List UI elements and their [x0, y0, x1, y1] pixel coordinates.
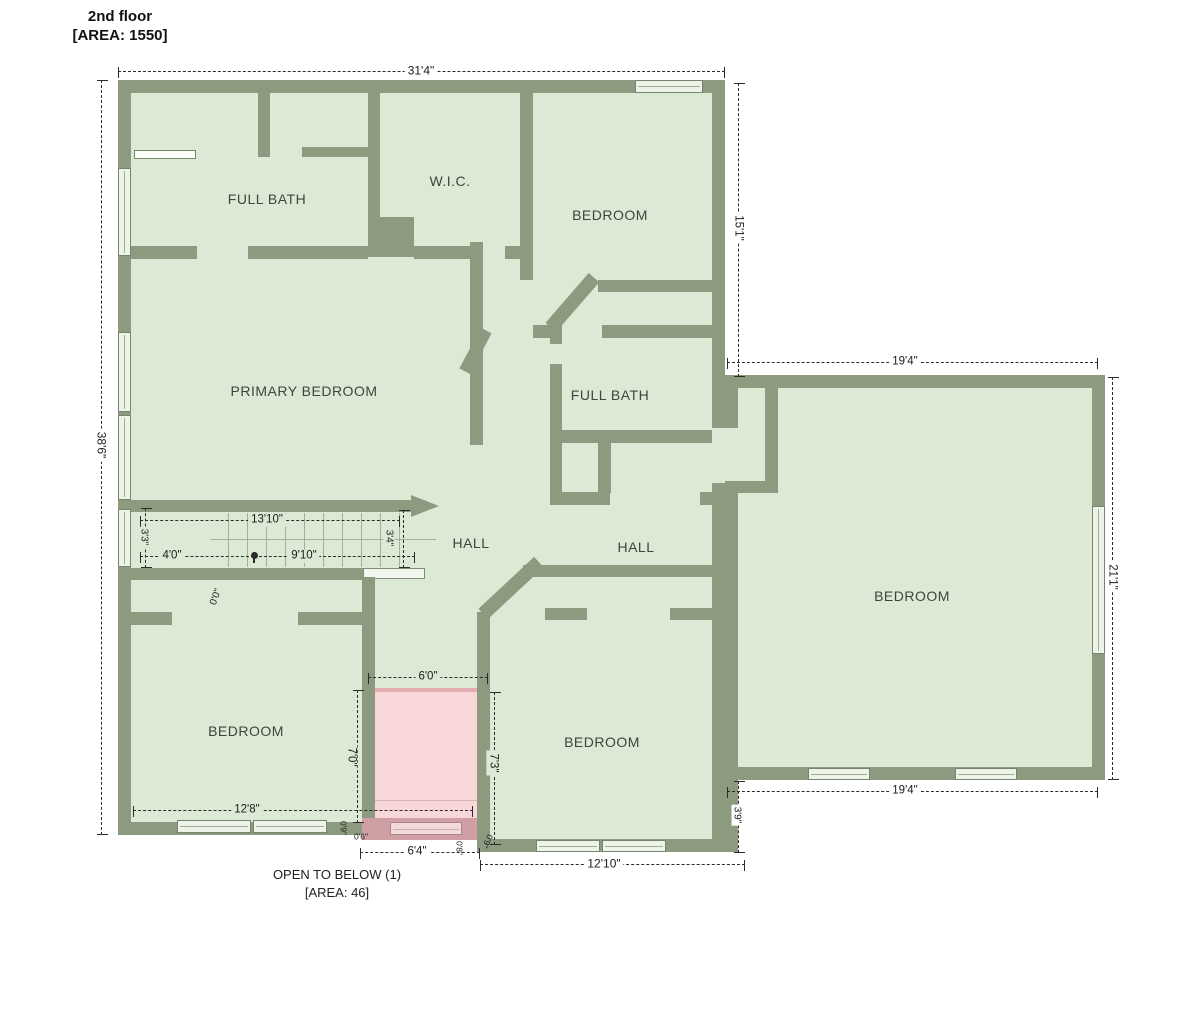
open-to-below-note-line1: OPEN TO BELOW (1): [247, 866, 427, 884]
bedroom-left-top-wall-b: [298, 612, 365, 625]
open-to-below-window: [390, 822, 462, 835]
window-bath1-left: [118, 168, 131, 256]
dim-overall-width-label: 31'4": [405, 64, 438, 77]
dim-right-height-label: 21'1": [1106, 561, 1119, 592]
room-label-full-bath-mid: FULL BATH: [571, 387, 649, 403]
dim-bedroom-left-width-label: 12'8": [231, 804, 262, 817]
window-bedroom-top: [635, 80, 703, 93]
bath1-counter: [134, 150, 196, 159]
bath1-stub-wall: [258, 93, 270, 157]
window-primary-left-upper: [118, 332, 131, 412]
dim-stairs-end-line: [403, 510, 404, 568]
floor-title-name: 2nd floor: [55, 8, 185, 27]
under-stairs-wall: [131, 568, 363, 580]
room-label-bedroom-top: BEDROOM: [572, 207, 648, 223]
bath1-partition-wall: [302, 147, 368, 157]
open-to-below-inner-line: [375, 800, 477, 801]
window-bedroom-mid-bottom-a: [536, 840, 600, 852]
room-label-bedroom-left: BEDROOM: [208, 723, 284, 739]
room-label-hall-left: HALL: [452, 535, 489, 551]
window-stairs-left: [118, 509, 131, 567]
dim-open-seg-c-label: 0'8": [454, 840, 463, 856]
dim-stairs-run-b-line: [254, 556, 415, 557]
dim-right-offset-label: 3'9": [732, 805, 743, 826]
dim-open-seg-b-label: 0'6": [353, 832, 369, 841]
bath1-bottom-wall-a: [131, 246, 197, 259]
dim-stairs-end-label: 3'4": [384, 528, 395, 549]
window-bedroom-mid-bottom-b: [602, 840, 666, 852]
bedroom-mid-closet-stub-a: [545, 608, 587, 620]
window-bedroom-right-bottom-a: [808, 768, 870, 780]
window-primary-left-lower: [118, 415, 131, 500]
bedroom-left-top-wall-a: [131, 612, 172, 625]
right-bedroom-closet-right-wall: [765, 383, 778, 493]
open-to-below-note-line2: [AREA: 46]: [247, 884, 427, 902]
dim-stairs-run-a-label: 4'0": [159, 550, 184, 563]
dim-open-width-top-label: 6'0": [415, 671, 440, 684]
floor-title: 2nd floor [AREA: 1550]: [55, 8, 185, 46]
right-bedroom-floor: [738, 388, 1092, 767]
dim-bedroom-top-height-label: 15'1": [732, 212, 745, 243]
bath2-left-wall-a: [550, 330, 562, 344]
bedroom-top-closet-bottom-wall-b: [602, 325, 712, 338]
room-label-bedroom-right: BEDROOM: [874, 588, 950, 604]
dim-open-width-bottom-label: 6'4": [404, 846, 429, 859]
room-label-bedroom-mid: BEDROOM: [564, 734, 640, 750]
dim-right-width-bottom-label: 19'4": [889, 785, 920, 798]
wic-left-wall: [368, 93, 380, 217]
room-label-wic: W.I.C.: [429, 173, 470, 189]
bedroom-mid-closet-stub-b: [670, 608, 712, 620]
dim-open-height-right-label: 7'3": [487, 750, 500, 775]
dim-open-height-left-label: 7'0": [345, 744, 358, 769]
window-bedroom-left-bottom-a: [177, 820, 251, 833]
dim-stairs-width-label: 3'3": [139, 527, 150, 548]
floor-plan-canvas: 31'4" 38'6" 15'1" 19'4" 21'1" 19'4" 3'9"…: [0, 0, 1200, 1010]
floor-title-area: [AREA: 1550]: [55, 27, 185, 46]
window-bedroom-right-bottom-b: [955, 768, 1017, 780]
window-bedroom-left-bottom-b: [253, 820, 327, 833]
dim-bedroom-left-width-line: [133, 810, 473, 811]
dim-stairs-run-a-line: [140, 556, 254, 557]
room-label-full-bath-upper: FULL BATH: [228, 191, 306, 207]
room-label-primary-bedroom: PRIMARY BEDROOM: [230, 383, 377, 399]
bedroom-top-left-wall: [520, 93, 533, 280]
toilet-divider-wall: [598, 443, 611, 493]
dim-right-width-top-label: 19'4": [889, 356, 920, 369]
wic-corner-block: [368, 217, 414, 257]
wic-bottom-wall-a: [414, 246, 472, 259]
hall-to-right-bedroom-doorway: [712, 428, 738, 483]
window-bedroom-right-side: [1092, 506, 1105, 654]
dim-overall-height-label: 38'6": [94, 429, 107, 462]
dim-bedroom-mid-width-label: 12'10": [584, 857, 623, 870]
dim-stairs-length-label: 13'10": [248, 514, 286, 527]
bedroom-top-closet-top-wall: [598, 280, 712, 292]
open-to-below-note: OPEN TO BELOW (1) [AREA: 46]: [247, 866, 427, 902]
bath1-bottom-wall-b: [248, 246, 368, 259]
dim-open-seg-a-label: 0'9": [338, 820, 347, 836]
right-bedroom-closet-bottom-wall: [725, 481, 778, 493]
stairs-top-wall: [131, 500, 411, 512]
room-label-hall-right: HALL: [617, 539, 654, 555]
dim-stairs-run-b-label: 9'10": [288, 550, 319, 563]
bedroom-mid-top-wall: [523, 565, 725, 577]
toilet-bottom-wall-b: [700, 492, 712, 505]
bath2-middle-wall: [555, 430, 712, 443]
bedroom-mid-left-wall: [477, 612, 490, 845]
toilet-bottom-wall-a: [553, 492, 610, 505]
stair-direction-arrow-icon: [411, 495, 439, 517]
